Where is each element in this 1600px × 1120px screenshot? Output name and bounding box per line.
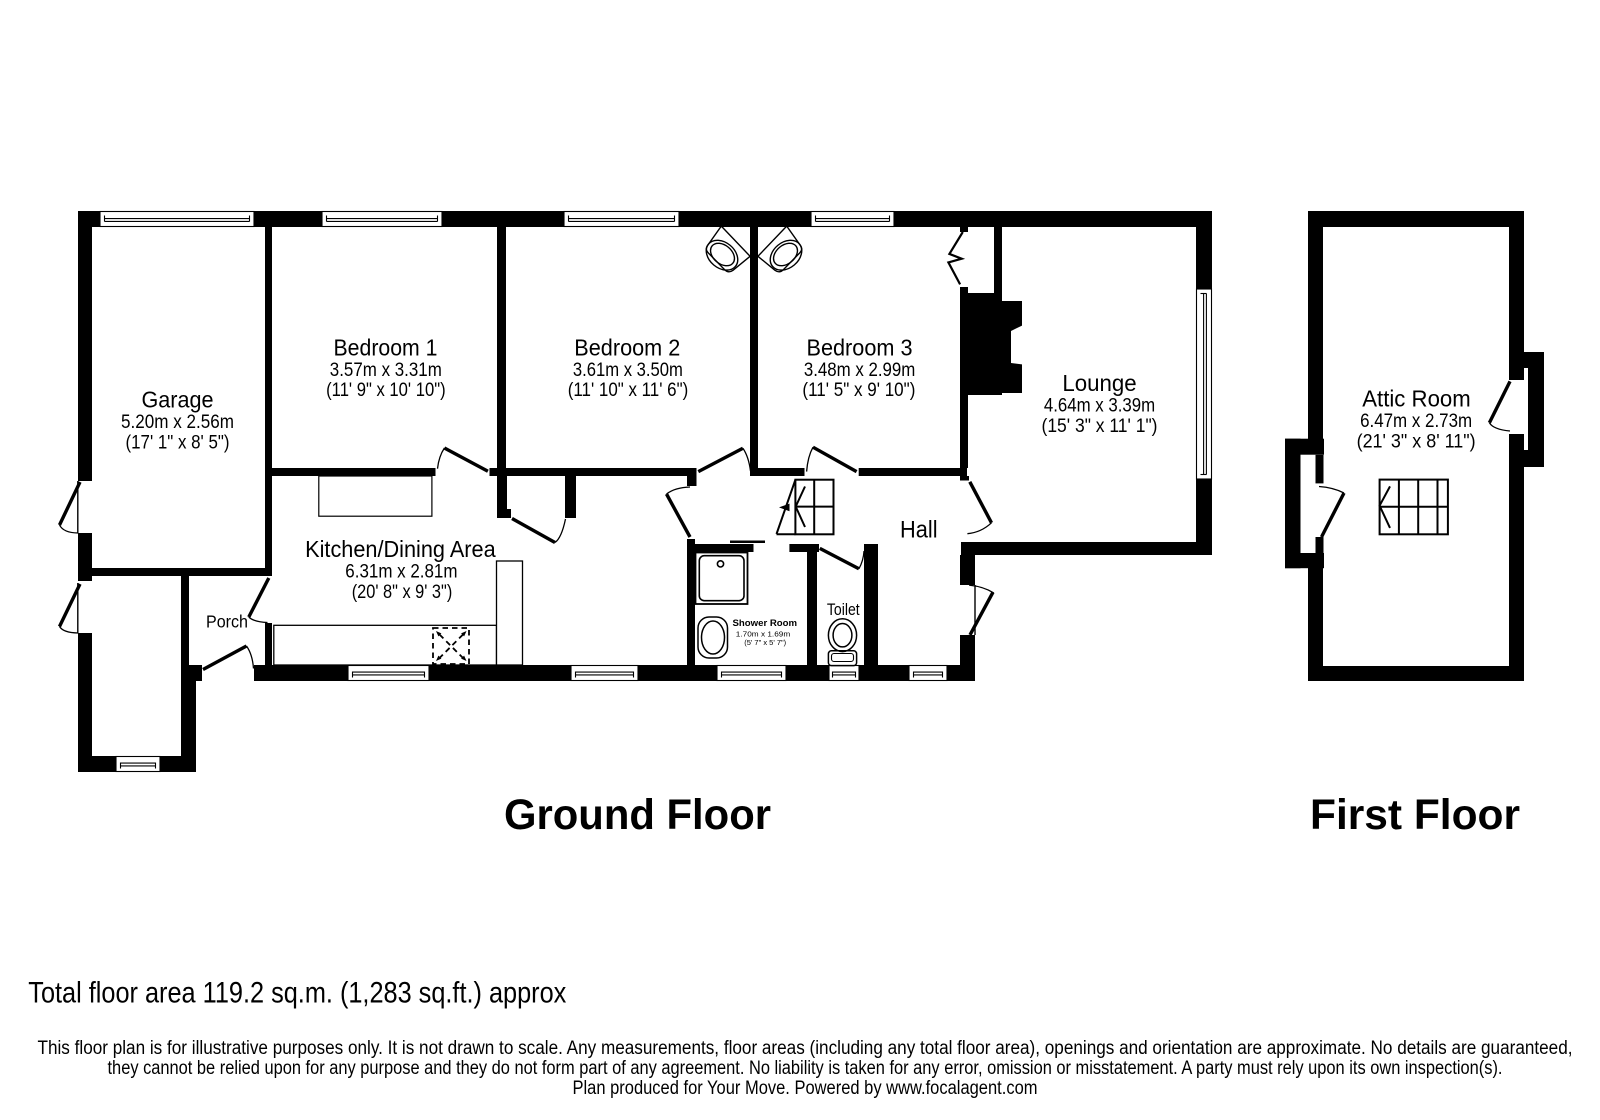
svg-text:Bedroom 1: Bedroom 1 <box>334 335 438 361</box>
svg-text:Attic Room: Attic Room <box>1362 386 1471 412</box>
svg-text:3.57m x 3.31m: 3.57m x 3.31m <box>330 360 442 381</box>
svg-text:6.31m x 2.81m: 6.31m x 2.81m <box>345 561 457 582</box>
svg-text:Garage: Garage <box>142 387 214 413</box>
svg-text:(11' 10" x 11' 6"): (11' 10" x 11' 6") <box>568 380 689 401</box>
svg-text:Ground Floor: Ground Floor <box>504 791 771 839</box>
svg-text:Toilet: Toilet <box>827 600 860 619</box>
svg-text:Porch: Porch <box>206 612 248 632</box>
svg-text:Shower Room: Shower Room <box>733 618 798 629</box>
svg-text:they cannot be relied upon for: they cannot be relied upon for any purpo… <box>108 1058 1503 1079</box>
svg-text:3.48m x 2.99m: 3.48m x 2.99m <box>804 360 916 381</box>
svg-text:(11' 9" x 10' 10"): (11' 9" x 10' 10") <box>326 380 446 401</box>
svg-text:6.47m x 2.73m: 6.47m x 2.73m <box>1360 411 1472 432</box>
svg-text:(20' 8" x 9' 3"): (20' 8" x 9' 3") <box>352 582 453 603</box>
svg-text:5.20m x 2.56m: 5.20m x 2.56m <box>121 412 234 433</box>
svg-text:Plan produced for Your Move. P: Plan produced for Your Move. Powered by … <box>573 1078 1038 1099</box>
svg-text:Lounge: Lounge <box>1062 370 1136 396</box>
svg-text:(5' 7" x 5' 7"): (5' 7" x 5' 7") <box>744 638 786 647</box>
svg-text:Bedroom 3: Bedroom 3 <box>807 335 913 361</box>
svg-text:(15' 3" x 11' 1"): (15' 3" x 11' 1") <box>1042 416 1158 437</box>
svg-text:(17' 1" x 8' 5"): (17' 1" x 8' 5") <box>126 432 230 453</box>
svg-text:3.61m x 3.50m: 3.61m x 3.50m <box>573 360 683 381</box>
svg-text:Hall: Hall <box>900 517 938 544</box>
svg-text:4.64m x 3.39m: 4.64m x 3.39m <box>1044 395 1155 416</box>
svg-text:Bedroom 2: Bedroom 2 <box>574 335 680 361</box>
svg-text:Kitchen/Dining Area: Kitchen/Dining Area <box>305 536 496 562</box>
svg-text:(21' 3" x 8' 11"): (21' 3" x 8' 11") <box>1357 431 1476 452</box>
svg-text:First Floor: First Floor <box>1310 791 1520 839</box>
svg-text:Total floor area 119.2 sq.m. (: Total floor area 119.2 sq.m. (1,283 sq.f… <box>28 977 566 1010</box>
svg-text:This floor plan is for illustr: This floor plan is for illustrative purp… <box>38 1038 1573 1059</box>
svg-text:(11' 5" x 9' 10"): (11' 5" x 9' 10") <box>802 380 915 401</box>
